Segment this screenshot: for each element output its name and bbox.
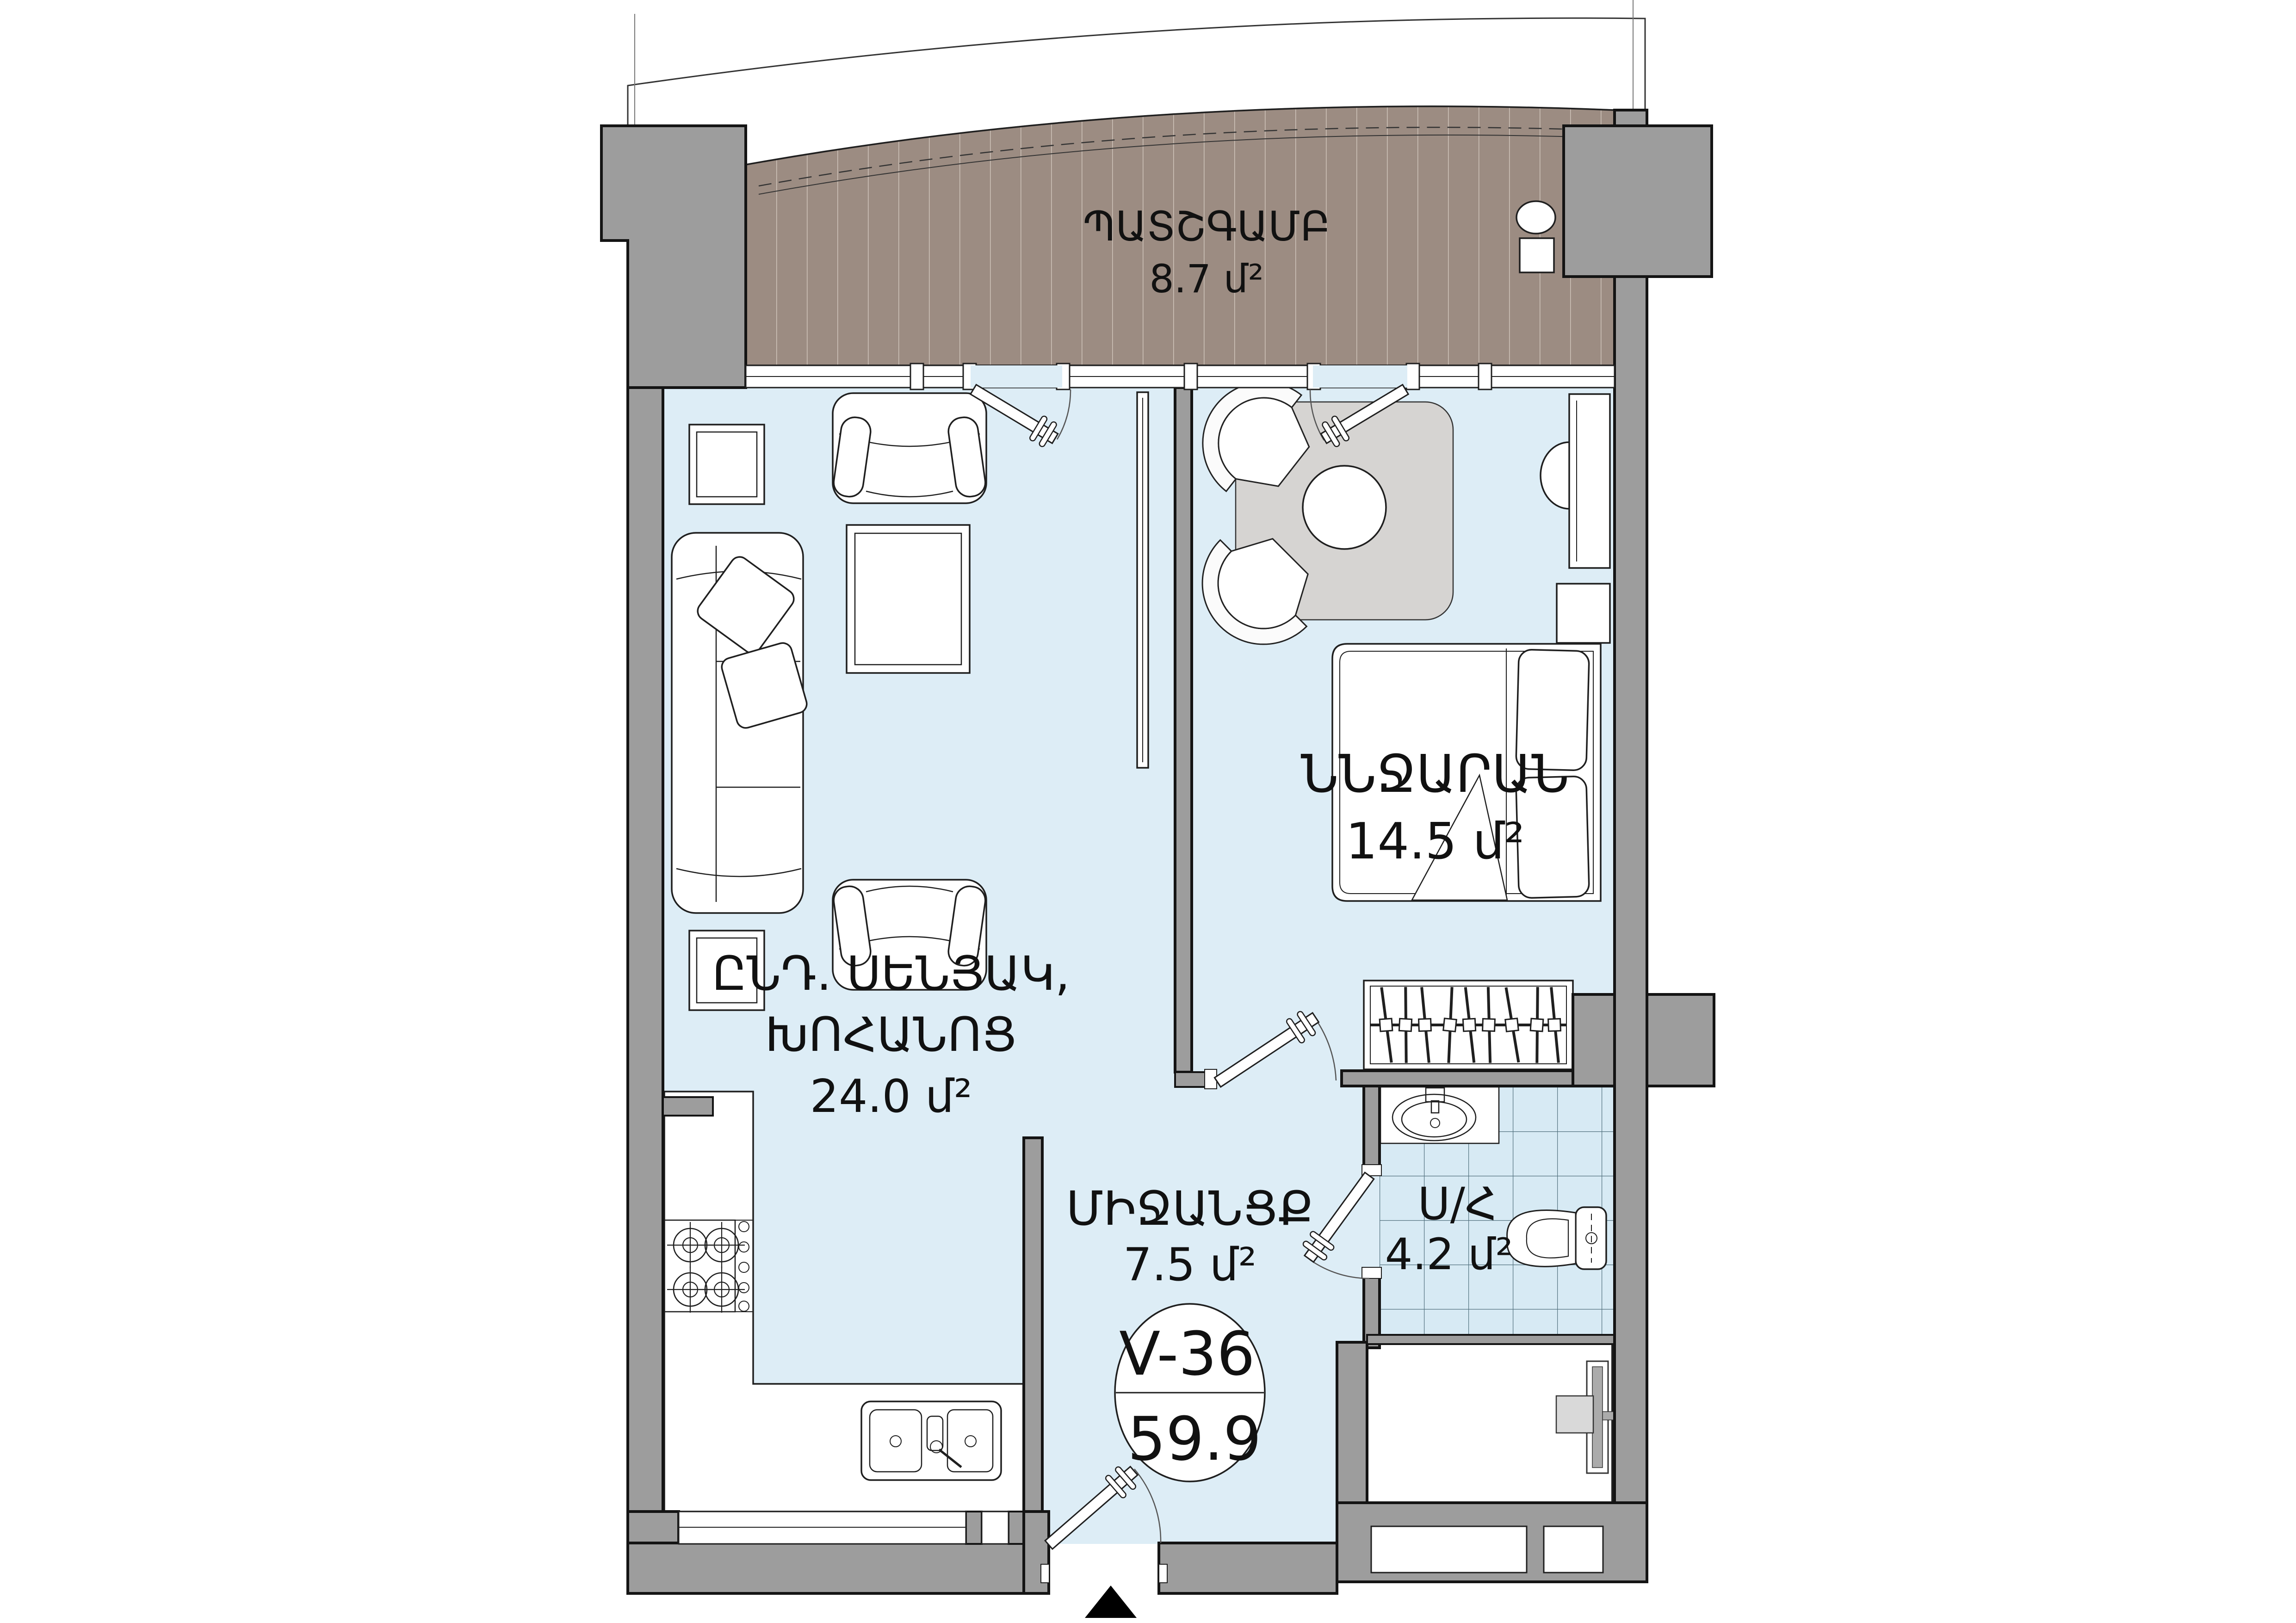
bedroom-area: 14.5 մ² <box>1346 813 1525 870</box>
side-table-top <box>689 425 764 504</box>
wall-column-top-right <box>1564 126 1712 277</box>
door-jamb <box>1362 1267 1381 1278</box>
bathroom-name: Ս/Հ <box>1417 1178 1497 1230</box>
armchair-top <box>832 393 987 503</box>
small-window <box>982 1512 1009 1544</box>
mullion <box>910 364 923 389</box>
sofa <box>672 533 809 913</box>
mullion <box>1184 364 1197 389</box>
bathroom-area: 4.2 մ² <box>1385 1229 1513 1280</box>
balcony-stool <box>1520 238 1554 272</box>
living-name-2: ԽՈՀԱՆՈՑ <box>765 1007 1017 1062</box>
door-jamb <box>1041 1564 1049 1583</box>
coffee-table <box>847 525 970 673</box>
balcony-name: ՊԱՏՇԳԱՄԲ <box>1083 203 1330 250</box>
mullion <box>1406 364 1419 389</box>
wall-living-bedroom <box>1175 388 1192 1072</box>
unit-total-area: 59.9 <box>1127 1404 1261 1474</box>
wall-window-jamb <box>1009 1512 1024 1544</box>
floor-plan-drawing: ՊԱՏՇԳԱՄԲ 8.7 մ² ԸՆԴ. ՍԵՆՅԱԿ, ԽՈՀԱՆՈՑ 24.… <box>0 0 2296 1623</box>
wall-bedroom-bath <box>1342 1071 1582 1086</box>
bedroom-name: ՆՆՋԱՐԱՆ <box>1301 744 1569 804</box>
living-name-1: ԸՆԴ. ՍԵՆՅԱԿ, <box>712 946 1070 1001</box>
wall-bottom-kitchen <box>628 1543 1049 1593</box>
wall-window-jamb <box>966 1512 982 1544</box>
kitchen-window <box>679 1512 966 1544</box>
balcony-table <box>1516 201 1555 234</box>
window-bottom-right-2 <box>1544 1526 1603 1573</box>
hallway-area: 7.5 մ² <box>1123 1239 1256 1291</box>
balcony-area: 8.7 մ² <box>1149 256 1263 302</box>
floor-plan: ՊԱՏՇԳԱՄԲ 8.7 մ² ԸՆԴ. ՍԵՆՅԱԿ, ԽՈՀԱՆՈՑ 24.… <box>0 0 2296 1623</box>
window-bottom-right-1 <box>1371 1526 1527 1573</box>
round-table <box>1303 466 1386 549</box>
bathroom-sink <box>1380 1087 1499 1143</box>
unit-number: V-36 <box>1119 1319 1255 1389</box>
wall-bath-west-upper <box>1364 1086 1380 1175</box>
unit-badge: V-36 59.9 <box>1115 1304 1265 1481</box>
tv-panel <box>1137 392 1148 768</box>
hallway-name: ՄԻՋԱՆՑՔ <box>1066 1181 1313 1236</box>
entrance-arrow-icon <box>1085 1586 1137 1618</box>
door-jamb <box>1159 1564 1167 1583</box>
toilet <box>1507 1207 1606 1269</box>
wall-column-top-left <box>601 126 746 388</box>
nightstand <box>1557 584 1610 643</box>
wall-kitchen-stub <box>663 1097 713 1116</box>
wall-kitchen-hall <box>1024 1138 1042 1543</box>
living-area: 24.0 մ² <box>810 1070 972 1123</box>
kitchen-sink <box>861 1401 1001 1480</box>
wall-left <box>628 388 663 1593</box>
wall-shaft-top <box>1367 1335 1615 1344</box>
wardrobe <box>1364 981 1573 1069</box>
wall-bottom-hall <box>1159 1543 1337 1593</box>
wall-right <box>1615 110 1647 1582</box>
mullion <box>1479 364 1491 389</box>
